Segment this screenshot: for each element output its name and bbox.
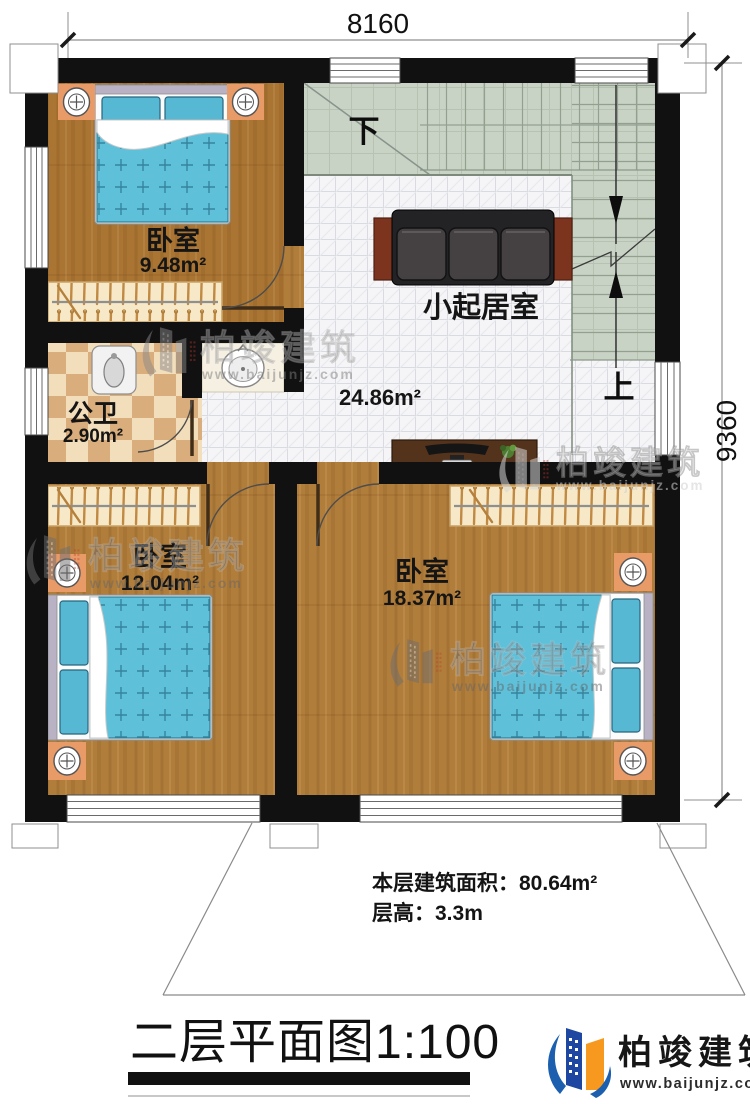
dim-width-value: 8160 xyxy=(347,8,409,39)
porch-outline: 本层建筑面积：80.64m² 层高：3.3m xyxy=(163,823,745,995)
window-bottom-left xyxy=(67,795,260,822)
living-name: 小起居室 xyxy=(423,290,539,324)
page-title: 二层平面图1:100 xyxy=(130,1016,500,1069)
living-area: 24.86m² xyxy=(339,385,421,410)
door-gap-bedroom-right xyxy=(317,462,379,484)
axis-box xyxy=(660,824,706,848)
closet-left xyxy=(48,486,200,526)
axis-box xyxy=(12,824,58,848)
brand-name: 柏竣建筑 xyxy=(618,1033,750,1072)
stair-up-label: 上 xyxy=(604,370,635,405)
title-underline-bar xyxy=(128,1072,470,1085)
window-top-2 xyxy=(575,58,648,83)
brand-logo-icon xyxy=(548,1028,611,1098)
watermark-brand: 柏竣建筑 xyxy=(200,327,360,368)
bedroom-right-area: 18.37m² xyxy=(383,587,461,610)
brand-website: www.baijunjz.com xyxy=(619,1076,750,1092)
watermark-url: www.baijunjz.com xyxy=(451,678,605,694)
floor-height-note: 层高：3.3m xyxy=(372,901,483,925)
bed-left xyxy=(48,595,212,740)
window-bottom-right xyxy=(360,795,622,822)
floor-plan-drawing: 下 上 xyxy=(0,0,750,1104)
watermark-url: www.baijunjz.com xyxy=(555,478,705,493)
title-block: 二层平面图1:100 xyxy=(128,1016,500,1096)
stair-down-label: 下 xyxy=(349,114,380,149)
window-left-bedroom xyxy=(25,147,48,268)
watermark-url: www.baijunjz.com xyxy=(89,575,243,591)
axis-box xyxy=(270,824,318,848)
floor-plan-document: 下 上 xyxy=(0,0,750,1104)
window-right-stairs xyxy=(655,362,680,455)
watermark-brand: 柏竣建筑 xyxy=(450,639,610,680)
watermark-brand: 柏竣建筑 xyxy=(556,444,704,481)
closet-top xyxy=(48,282,222,322)
window-top-1 xyxy=(330,58,400,83)
bedroom-top-name: 卧室 xyxy=(146,225,200,256)
wall-mid-stub xyxy=(269,462,317,484)
squat-toilet xyxy=(92,346,136,394)
axis-box xyxy=(658,44,706,93)
bedroom-right-name: 卧室 xyxy=(395,556,449,587)
wall-bedroom-top-right-upper xyxy=(284,58,304,246)
wall-bedrooms-divider xyxy=(275,484,297,795)
dim-depth-value: 9360 xyxy=(711,400,742,462)
bed-top xyxy=(95,85,230,224)
floor-area-note: 本层建筑面积：80.64m² xyxy=(372,871,597,895)
door-gap-bedroom-left xyxy=(207,462,269,484)
brand-logo: 柏竣建筑 www.baijunjz.com xyxy=(548,1028,750,1098)
bathroom-area: 2.90m² xyxy=(63,426,123,447)
corridor-floor xyxy=(202,392,304,462)
sofa xyxy=(374,210,572,285)
door-gap-bedroom-top xyxy=(284,246,304,308)
wall-mid-left xyxy=(25,462,207,484)
watermark-url: www.baijunjz.com xyxy=(201,366,355,382)
window-left-bathroom xyxy=(25,368,48,435)
axis-box xyxy=(10,44,58,93)
watermark-brand: 柏竣建筑 xyxy=(88,535,248,576)
bedroom-top-area: 9.48m² xyxy=(140,254,207,277)
bathroom-name: 公卫 xyxy=(68,400,118,428)
